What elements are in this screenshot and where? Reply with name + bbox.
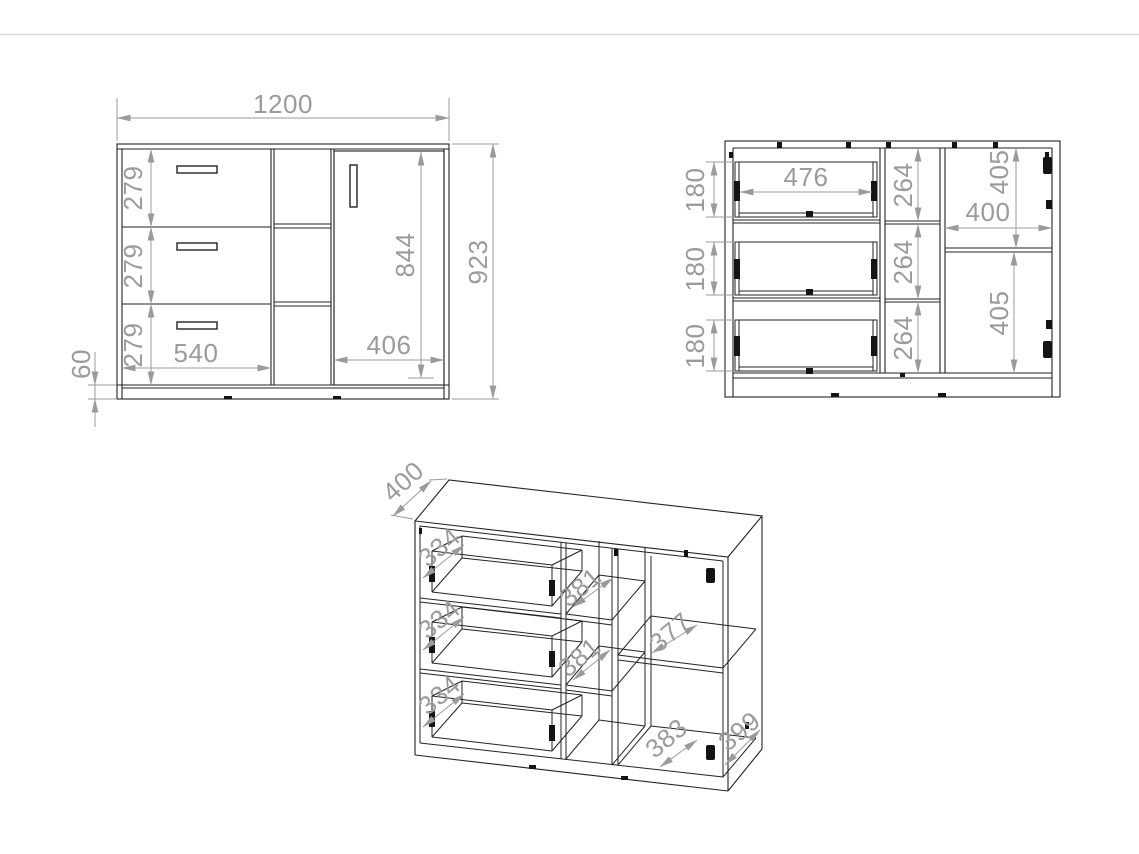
dim-door-niche-width: 400 bbox=[966, 197, 1011, 227]
technical-drawing-canvas: 1200 923 844 279 279 279 540 406 60 bbox=[0, 0, 1139, 854]
dim-box-3-height: 180 bbox=[680, 324, 710, 369]
dim-niche-2-height: 264 bbox=[888, 240, 918, 285]
dim-side-depth: 399 bbox=[712, 705, 766, 757]
foot-mark bbox=[621, 776, 628, 780]
center-column-lines bbox=[271, 149, 334, 385]
front-view: 1200 923 844 279 279 279 540 406 60 bbox=[66, 89, 499, 427]
dim-niche-2-depth: 381 bbox=[552, 631, 606, 683]
foot-mark bbox=[831, 393, 839, 397]
drawer-handle-3 bbox=[177, 322, 217, 329]
door-hinges bbox=[706, 568, 715, 760]
door-hinges bbox=[1043, 157, 1052, 358]
dim-drawer-2-height: 279 bbox=[118, 244, 148, 289]
technical-drawing-page: 1200 923 844 279 279 279 540 406 60 bbox=[0, 0, 1139, 854]
interior-view: 180 180 180 476 264 264 264 405 405 400 bbox=[680, 141, 1060, 397]
drawer-handle-2 bbox=[177, 243, 217, 250]
dim-drawer-3-height: 279 bbox=[118, 323, 148, 368]
dim-box-2-height: 180 bbox=[680, 247, 710, 292]
dim-drawer-width: 540 bbox=[174, 338, 219, 368]
dim-plinth-height: 60 bbox=[66, 349, 96, 379]
drawer-box-2 bbox=[735, 242, 877, 295]
dim-total-height: 923 bbox=[463, 240, 493, 285]
center-shelf-lines bbox=[274, 224, 331, 306]
drawer-handle-1 bbox=[177, 166, 217, 173]
door-handle bbox=[350, 165, 357, 207]
dim-door-niche-top: 405 bbox=[984, 150, 1014, 195]
iso-view: 400 334 334 334 381 381 377 383 399 bbox=[376, 455, 766, 791]
drawer-slide-rails bbox=[429, 566, 555, 741]
drawer-slide-rails bbox=[734, 181, 877, 374]
door-shelf-lines bbox=[618, 655, 723, 673]
dim-niche-1-height: 264 bbox=[888, 163, 918, 208]
dim-door-width: 406 bbox=[367, 330, 412, 360]
foot-mark bbox=[224, 396, 232, 400]
dim-niche-3-height: 264 bbox=[888, 316, 918, 361]
dim-top-depth: 400 bbox=[376, 455, 429, 507]
dim-drawer-1-height: 279 bbox=[118, 166, 148, 211]
drawer-box-2-inner bbox=[739, 242, 873, 295]
dim-door-niche-bottom: 405 bbox=[984, 291, 1014, 336]
dim-total-width: 1200 bbox=[253, 89, 313, 119]
foot-mark bbox=[938, 393, 946, 397]
dim-box-1-height: 180 bbox=[680, 168, 710, 213]
foot-mark bbox=[529, 765, 536, 769]
drawer-box-3 bbox=[735, 320, 877, 371]
extension-lines bbox=[88, 98, 499, 427]
dim-door-height: 844 bbox=[390, 233, 420, 278]
dim-bottom-depth: 383 bbox=[639, 712, 693, 764]
drawer-row-panel-lines bbox=[733, 220, 880, 301]
door-shelf-lines bbox=[945, 248, 1052, 252]
foot-mark bbox=[333, 396, 341, 400]
drawer-box-3-inner bbox=[739, 320, 873, 371]
bottom-panel-lines bbox=[733, 373, 1052, 378]
extension-lines bbox=[706, 162, 735, 371]
dim-box-width: 476 bbox=[784, 162, 829, 192]
